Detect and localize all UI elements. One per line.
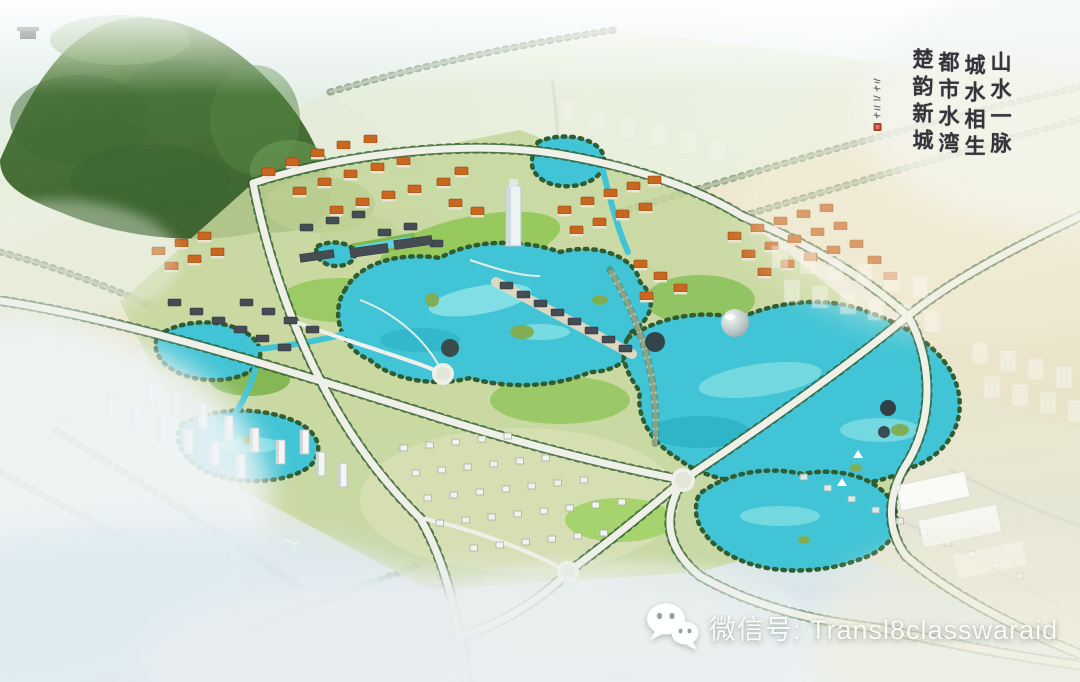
roundabout-east — [673, 470, 693, 490]
calligraphy-line-2: 城水相生 — [964, 54, 985, 208]
roundabout-park — [434, 365, 452, 383]
calligraphy-line-1: 山水一脉 — [990, 51, 1011, 208]
calligraphy-line-3: 都市水湾 — [938, 51, 959, 208]
calligraphy-block: 山水一脉 城水相生 都市水湾 楚韵新城 — [907, 48, 1016, 208]
calligraphy-signature — [870, 76, 884, 136]
watermark-text: 微信号: Transl8classwaraid — [709, 608, 1058, 647]
silver-dome — [721, 309, 749, 337]
wechat-watermark: 微信号: Transl8classwaraid — [646, 602, 1058, 652]
white-tower — [506, 179, 521, 246]
wechat-icon — [646, 602, 700, 652]
central-lake — [338, 243, 651, 385]
calligraphy-line-4: 楚韵新城 — [912, 48, 933, 208]
rendering-canvas: 山水一脉 城水相生 都市水湾 楚韵新城 — [0, 0, 1080, 682]
